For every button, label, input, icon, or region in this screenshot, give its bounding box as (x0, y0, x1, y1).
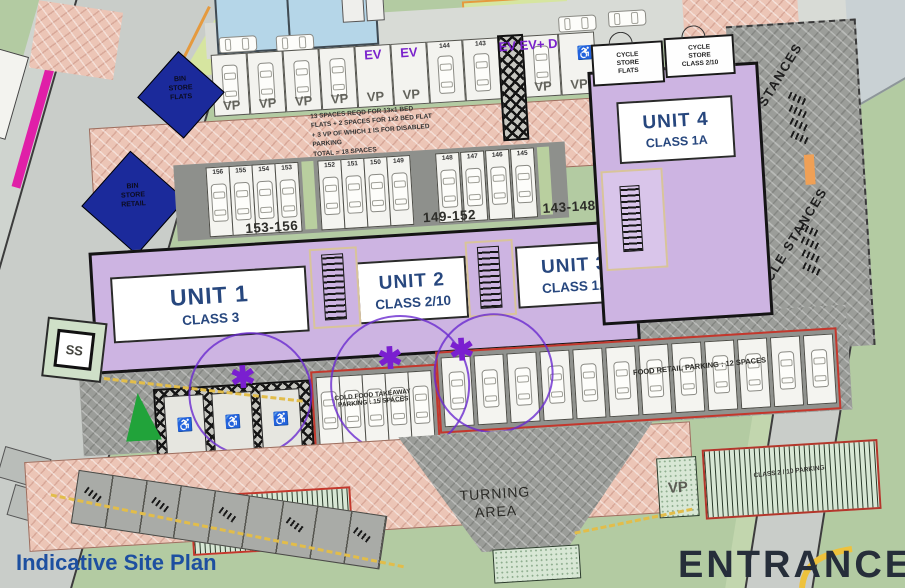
bay-number: 146 (486, 151, 508, 159)
cycle-rack-icon (353, 527, 372, 543)
bay-label: VP (286, 92, 321, 109)
car-icon (233, 182, 251, 221)
bay-label: VP (250, 95, 285, 112)
unit-name: UNIT 4 (642, 109, 709, 135)
unit-name: UNIT 1 (169, 280, 249, 312)
cycle-rack-icon (790, 131, 809, 145)
vp-bay-label: VP (667, 478, 688, 496)
bay-label: VP (322, 90, 357, 107)
ev-label: EV (355, 46, 390, 63)
site-plan: VP VP VP VP VP EVVP EVVP 144 (0, 0, 905, 588)
bay-number: 153 (275, 164, 297, 172)
tree-icon: ✱ (230, 363, 257, 394)
car-icon (368, 174, 386, 213)
vp-bay-bottom: VP (656, 456, 700, 518)
parking-bay: VP (318, 46, 358, 110)
unit-class: CLASS 2/10 (375, 292, 452, 312)
car-icon (322, 176, 340, 215)
parking-bay (770, 335, 804, 407)
car-icon (345, 175, 363, 214)
bay-number: 154 (253, 165, 275, 173)
unit-class: CLASS 3 (182, 310, 240, 328)
parking-bay: VP (282, 48, 322, 112)
wheelchair-icon: ♿ (177, 417, 194, 434)
car-icon (490, 166, 508, 205)
parking-bay-ev: EVVP (390, 42, 430, 106)
parking-bay: 146 (485, 149, 513, 220)
substation: SS (41, 317, 107, 383)
stair-icon (619, 185, 643, 252)
bay-label: VP (214, 97, 249, 114)
car-icon (608, 9, 647, 27)
cycle-rack-cluster-lower (800, 226, 821, 279)
bay-label: VP (394, 86, 429, 103)
unit-class: CLASS 1A (646, 133, 709, 151)
bay-range-label-c: 143-148 (542, 198, 596, 216)
tree-icon: ✱ (377, 344, 404, 375)
substation-box: SS (53, 329, 95, 371)
entrance-label: ENTRANCE (678, 544, 905, 587)
parking-bay (605, 346, 639, 418)
parking-bay: 149 (386, 155, 414, 226)
cycle-rack-icon (286, 517, 305, 533)
unit-4-label: UNIT 4 CLASS 1A (616, 95, 736, 164)
turning-area-label: TURNING AREA (439, 481, 551, 524)
parking-bay (737, 338, 771, 410)
bay-label: VP (526, 78, 561, 95)
bench-marker (804, 154, 816, 185)
bay-number: 145 (511, 149, 533, 157)
bay-number: 143 (463, 39, 497, 48)
substation-label: SS (65, 341, 84, 358)
stair-icon (321, 253, 347, 320)
parking-bay: 145 (510, 147, 538, 218)
unit-1-label: UNIT 1 CLASS 3 (110, 266, 310, 344)
paving-patch-top-left (29, 0, 123, 80)
parking-bay (671, 342, 705, 414)
parking-bay-ev: EVVP (354, 44, 394, 108)
bay-number: 152 (318, 161, 340, 169)
cycle-rack-icon (802, 262, 821, 276)
car-icon (211, 183, 229, 222)
bay-number: 147 (461, 152, 483, 160)
car-icon (256, 180, 274, 219)
page-title: Indicative Site Plan (16, 550, 217, 576)
car-icon (219, 35, 258, 53)
stair-recess-1 (309, 246, 362, 329)
parking-bay: VP (247, 51, 287, 115)
unit-class: CLASS 1A (542, 277, 610, 296)
bay-number: 151 (341, 160, 363, 168)
bay-number: 156 (207, 168, 229, 176)
car-icon (580, 363, 598, 402)
outbuilding-2 (365, 0, 385, 21)
car-icon (473, 53, 491, 92)
bay-number: 150 (364, 158, 386, 166)
stair-icon (477, 246, 503, 309)
parking-bay (572, 348, 606, 420)
cycle-rack-cluster-upper (788, 95, 809, 148)
parking-bay-numbered: 144 (426, 40, 466, 104)
bay-number: 155 (230, 167, 252, 175)
car-icon (558, 14, 597, 32)
cycle-store-flats: CYCLE STORE FLATS (591, 40, 665, 86)
parking-bay-numbered: 143 (462, 37, 502, 101)
car-icon (440, 169, 458, 208)
car-icon (391, 172, 409, 211)
unit-4-stair-recess (600, 168, 668, 272)
parking-bay (638, 344, 672, 416)
outbuilding-1 (341, 0, 365, 23)
bay-range-label-b: 149-152 (423, 207, 477, 225)
car-icon (437, 55, 455, 94)
car-icon (515, 165, 533, 204)
cycle-rack-icon (218, 507, 237, 523)
bay-number: 148 (436, 154, 458, 162)
bay-number: 149 (387, 157, 409, 165)
planting-strip (301, 161, 317, 230)
cycle-store-class210: CYCLE STORE CLASS 2/10 (663, 34, 735, 78)
bin-store-flats-label: BIN STORE FLATS (153, 73, 209, 104)
unit-2-label: UNIT 2 CLASS 2/10 (356, 256, 470, 325)
site-tilt-group: VP VP VP VP EVVP EVVP 144 143 VP ♿VP EV … (0, 0, 905, 588)
ev-label: EV (391, 44, 426, 61)
bay-label: VP (358, 88, 393, 105)
stair-recess-2 (465, 239, 518, 318)
bay-number: 144 (427, 42, 461, 51)
tree-icon: ✱ (448, 335, 475, 366)
car-icon (279, 179, 297, 218)
parking-bay (803, 333, 837, 405)
parking-bay (704, 340, 738, 412)
bin-store-retail-label: BIN STORE RETAIL (103, 180, 163, 211)
landscape-strip-below-turning (492, 544, 581, 583)
car-icon (613, 361, 631, 400)
unit-name: UNIT 2 (378, 269, 445, 295)
car-icon (465, 168, 483, 207)
cycle-rack-icon (151, 497, 170, 513)
